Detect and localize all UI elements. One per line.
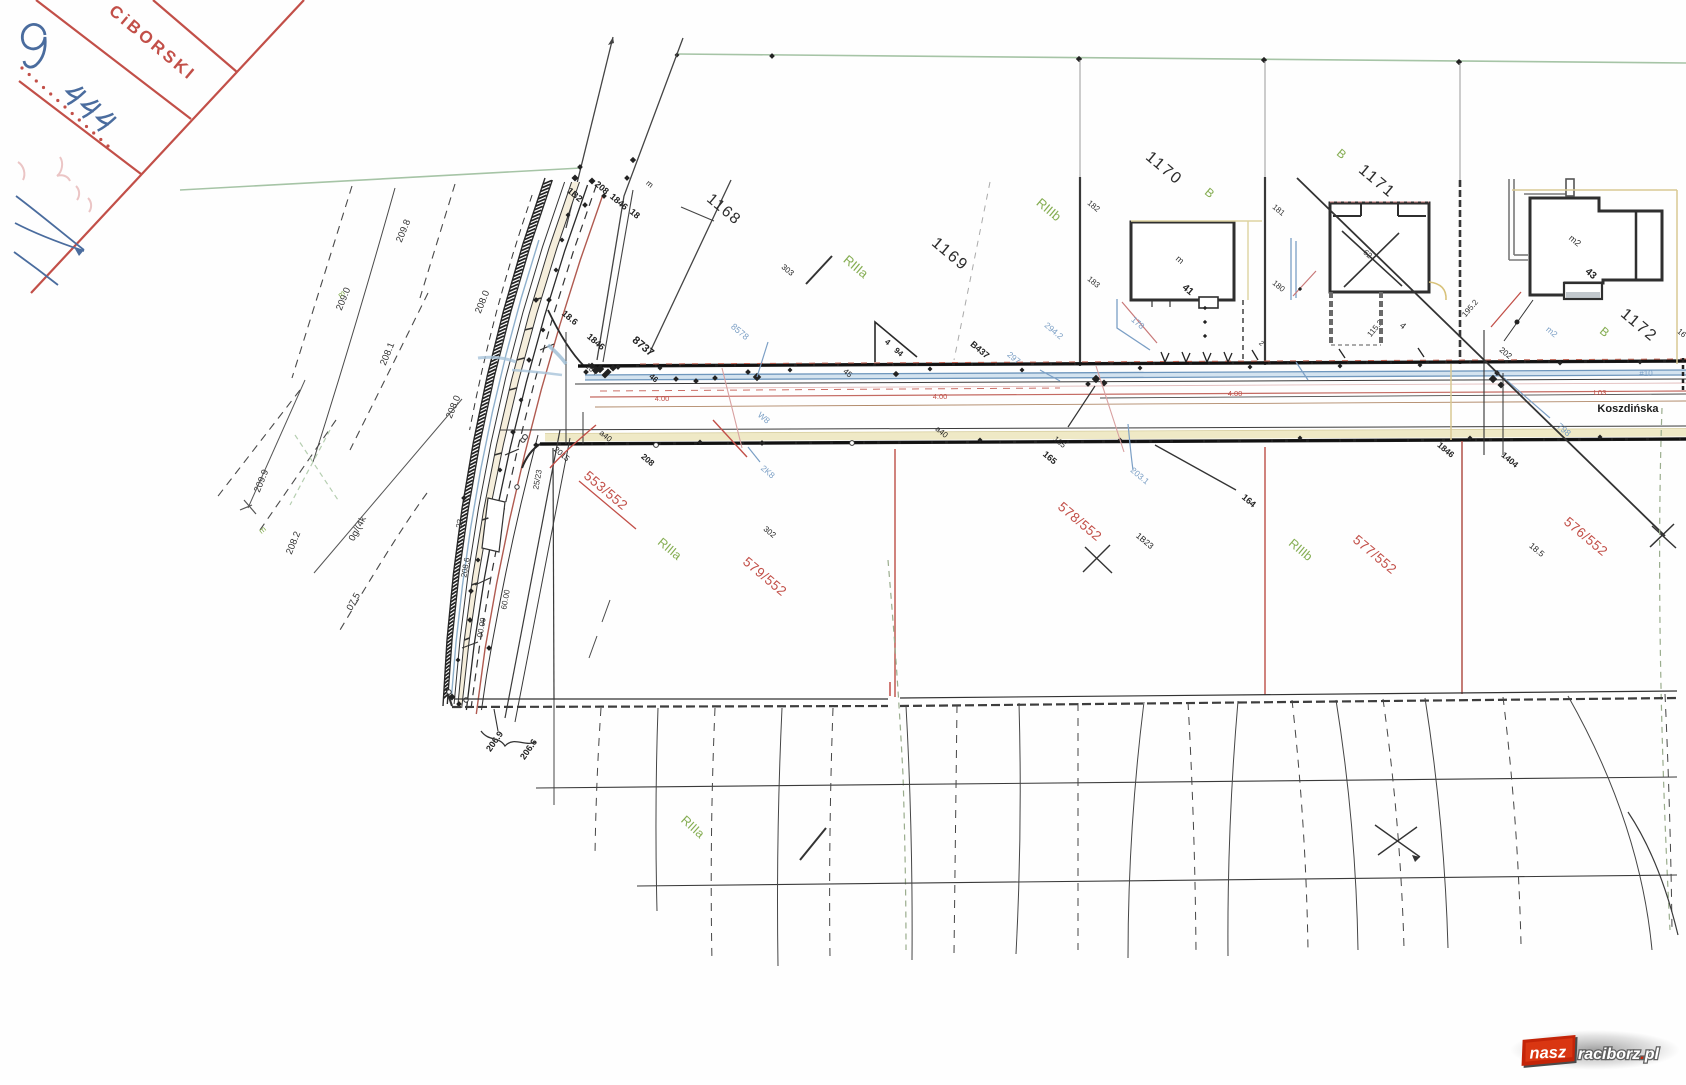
svg-text:L03: L03: [1594, 388, 1607, 397]
svg-text:raciborz.pl: raciborz.pl: [1578, 1046, 1659, 1063]
svg-text:#10: #10: [1639, 369, 1653, 378]
svg-text:4.00: 4.00: [1228, 389, 1243, 398]
svg-text:4.00: 4.00: [655, 394, 670, 403]
svg-text:4.00: 4.00: [933, 392, 948, 401]
svg-text:nasz: nasz: [1529, 1043, 1567, 1062]
svg-text:Koszdińska: Koszdińska: [1597, 403, 1659, 415]
